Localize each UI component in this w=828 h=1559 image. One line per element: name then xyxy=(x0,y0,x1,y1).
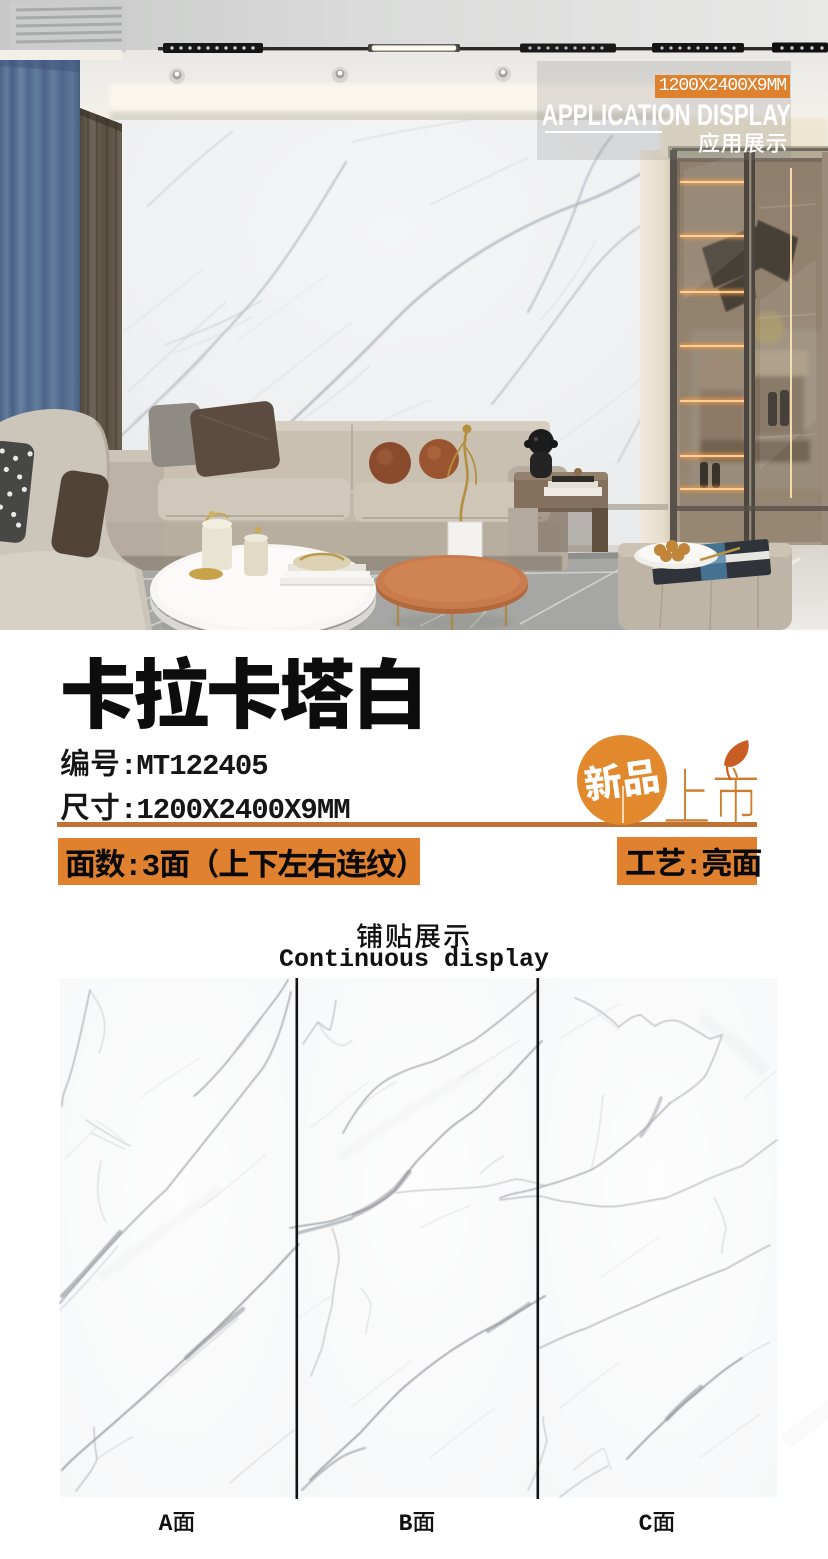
svg-text:新品: 新品 xyxy=(580,745,663,810)
svg-text:上市: 上市 xyxy=(663,748,761,826)
